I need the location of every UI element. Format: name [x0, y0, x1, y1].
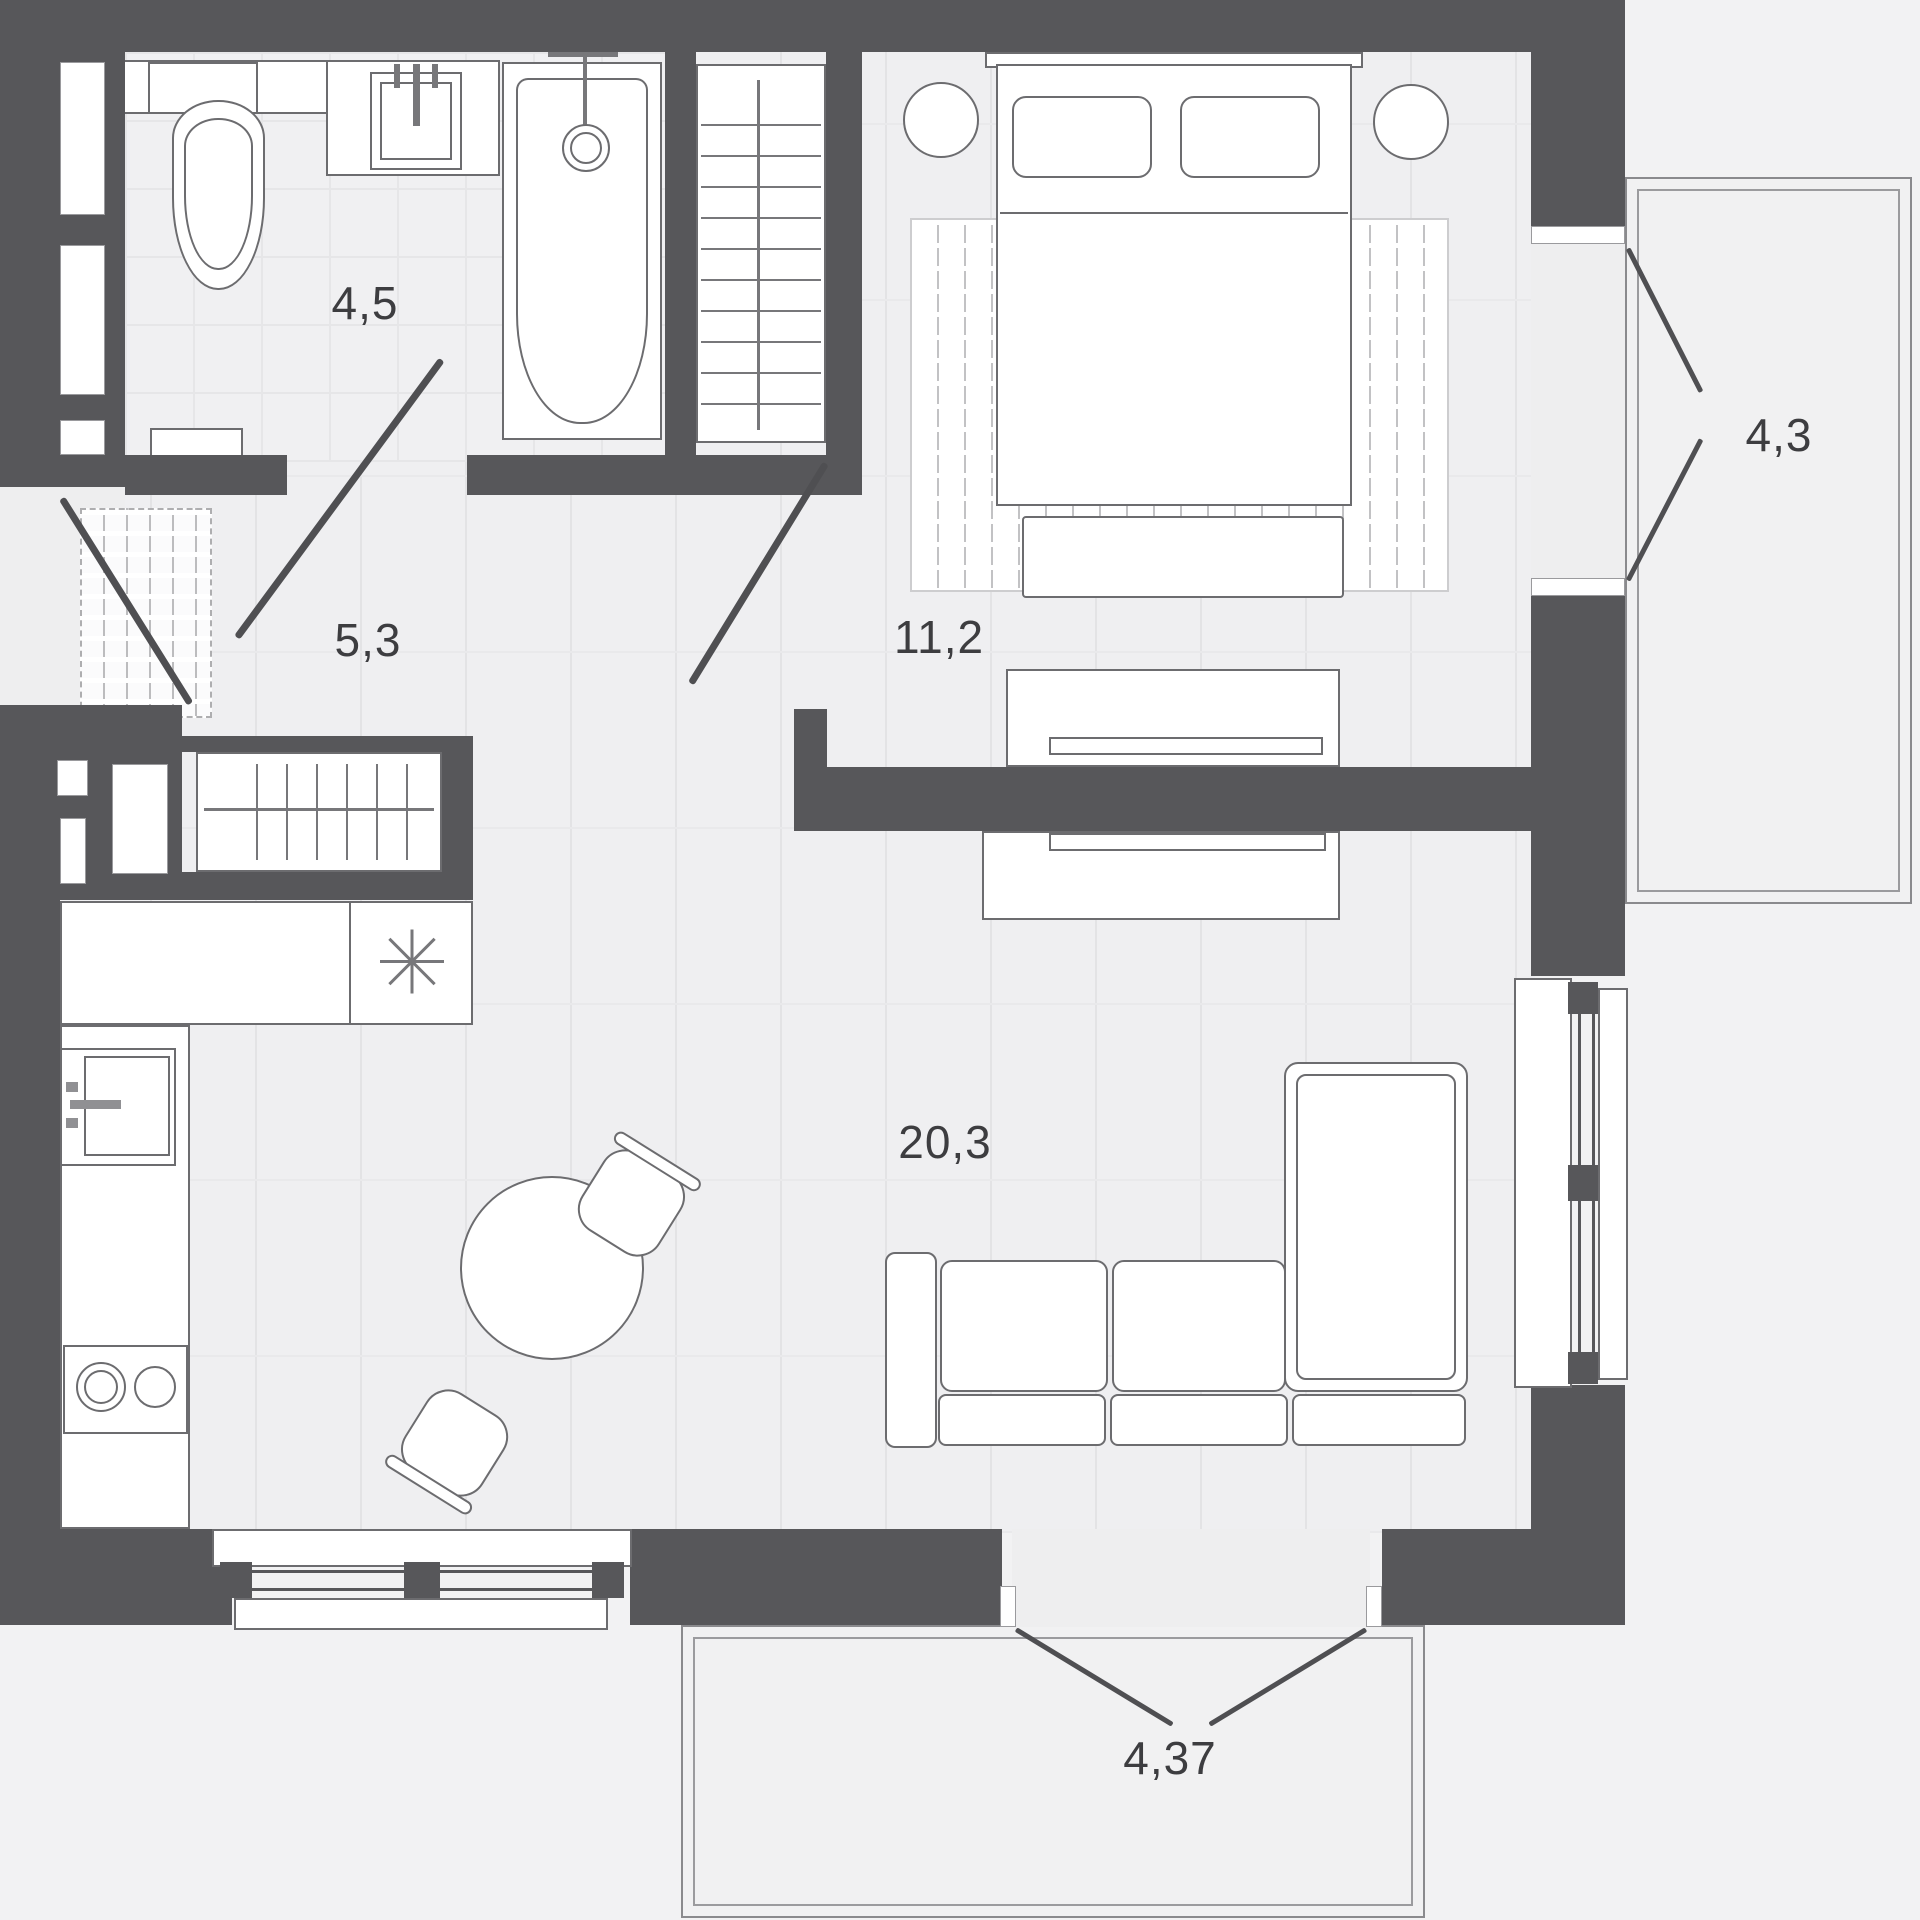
wall-segment: [125, 455, 287, 495]
wall-segment: [794, 767, 1531, 831]
faucet-icon: [66, 1082, 78, 1092]
pillow-icon: [1180, 96, 1320, 178]
duct-niche: [60, 420, 105, 455]
duct-niche: [60, 245, 105, 395]
wardrobe-hangers-icon: [228, 764, 420, 860]
wall-segment: [1531, 596, 1625, 976]
wardrobe-rod: [204, 808, 434, 811]
window-sill: [1598, 988, 1628, 1380]
window-mullion: [404, 1562, 440, 1598]
sofa-icon: [1112, 1260, 1286, 1392]
shower-hose-icon: [583, 57, 587, 127]
room-area-label-balcony-bottom: 4,37: [1090, 1731, 1250, 1785]
balcony-bottom-railing: [693, 1637, 1413, 1906]
bed-blanket-line: [1000, 212, 1348, 502]
window-glazing: [1592, 988, 1595, 1380]
balcony-right-railing: [1637, 189, 1900, 892]
balcony-door-threshold: [1012, 1529, 1370, 1627]
faucet-icon: [66, 1118, 78, 1128]
tv-icon: [1049, 737, 1323, 755]
room-area-label-balcony-right: 4,3: [1699, 408, 1859, 462]
balcony-door-threshold: [1531, 244, 1625, 578]
pillow-icon: [1012, 96, 1152, 178]
wall-segment: [794, 709, 827, 767]
duct-niche: [60, 818, 86, 884]
wall-segment: [467, 455, 862, 495]
bed-bench-icon: [1022, 516, 1344, 598]
balcony-right: [1625, 177, 1912, 904]
faucet-icon: [70, 1100, 121, 1109]
wall-segment: [182, 736, 473, 752]
tv-icon: [1049, 833, 1326, 851]
window-glazing: [224, 1588, 624, 1591]
nightstand-icon: [903, 82, 979, 158]
burner-icon: [134, 1366, 176, 1408]
window-icon: [1514, 978, 1572, 1388]
wall-segment: [1382, 1529, 1625, 1625]
sofa-back-cushion: [938, 1394, 1106, 1446]
faucet-icon: [394, 64, 400, 88]
wall-segment: [1531, 0, 1625, 226]
wall-segment: [0, 1529, 232, 1625]
door-jamb: [1531, 226, 1625, 244]
window-mullion: [220, 1562, 252, 1598]
sofa-back-cushion: [1292, 1394, 1466, 1446]
wall-segment: [59, 872, 473, 900]
sofa-chaise-inner: [1296, 1074, 1456, 1380]
door-jamb: [1366, 1586, 1382, 1627]
doormat-icon: [80, 508, 212, 718]
burner-icon: [84, 1370, 118, 1404]
faucet-icon: [432, 64, 438, 88]
room-area-label-living-kitchen: 20,3: [865, 1115, 1025, 1169]
duct-niche: [60, 62, 105, 215]
window-glazing: [224, 1570, 624, 1573]
wall-segment: [826, 52, 862, 455]
sofa-icon: [940, 1260, 1108, 1392]
room-area-label-bathroom: 4,5: [285, 276, 445, 330]
window-sill: [234, 1598, 608, 1630]
duct-niche: [112, 764, 168, 874]
room-area-label-hallway: 5,3: [288, 613, 448, 667]
shower-head-inner: [570, 132, 602, 164]
balcony-bottom: [681, 1625, 1425, 1918]
wardrobe-hangers-icon: [701, 95, 821, 425]
window-mullion: [592, 1562, 624, 1598]
toilet-bowl-inner: [184, 118, 253, 270]
door-jamb: [1000, 1586, 1016, 1627]
floor-plan: 4,5 5,3 11,2 20,3 4,3 4,37: [0, 0, 1920, 1920]
duct-niche: [57, 760, 88, 796]
window-glazing: [1578, 988, 1581, 1380]
nightstand-icon: [1373, 84, 1449, 160]
wall-segment: [0, 900, 60, 1529]
door-jamb: [1531, 578, 1625, 596]
room-area-label-bedroom: 11,2: [859, 610, 1019, 664]
sofa-back-cushion: [1110, 1394, 1288, 1446]
faucet-icon: [413, 64, 420, 126]
wall-segment: [665, 52, 696, 455]
kitchen-counter-divider: [349, 901, 351, 1025]
wall-segment: [630, 1529, 1002, 1625]
wall-segment: [0, 0, 1625, 52]
sofa-armrest: [885, 1252, 937, 1448]
